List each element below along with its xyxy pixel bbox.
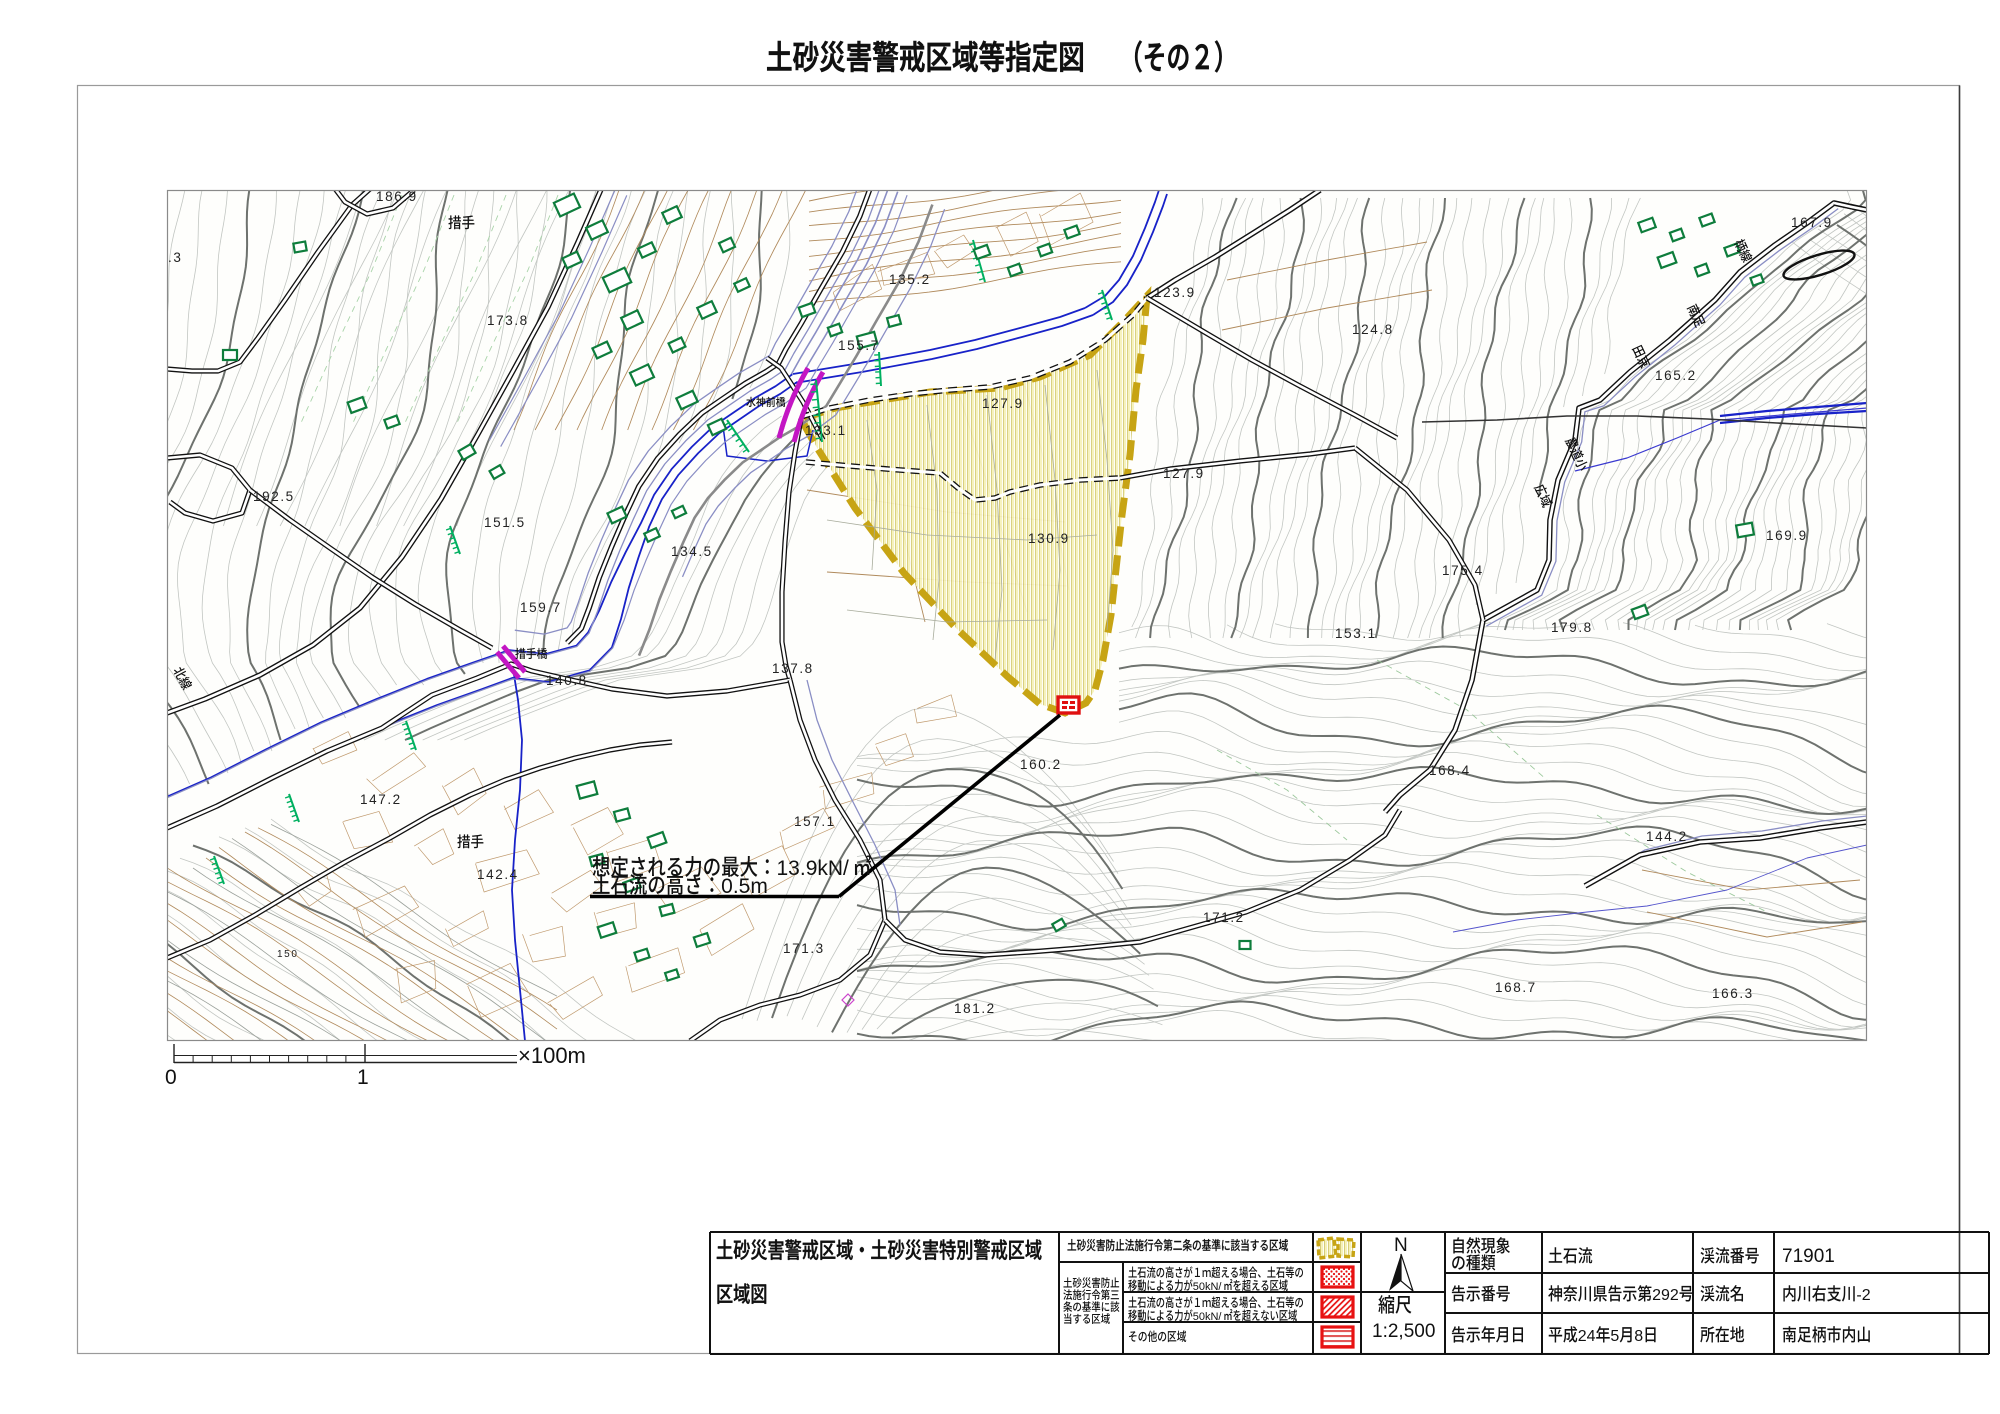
svg-text:153.1: 153.1 (1335, 626, 1377, 641)
svg-text:130.9: 130.9 (1028, 531, 1070, 546)
svg-text:160.2: 160.2 (1020, 757, 1062, 772)
svg-text:168.7: 168.7 (1495, 980, 1537, 995)
svg-text:171.2: 171.2 (1203, 910, 1245, 925)
svg-text:147.2: 147.2 (360, 792, 402, 807)
svg-text:50kN/: 50kN/ (1193, 1311, 1223, 1323)
svg-text:144.2: 144.2 (1646, 829, 1688, 844)
svg-text:0: 0 (165, 1066, 177, 1089)
svg-text:127.9: 127.9 (982, 396, 1024, 411)
svg-text:181.2: 181.2 (954, 1001, 996, 1016)
svg-text:137.8: 137.8 (772, 661, 814, 676)
svg-text:127.9: 127.9 (1163, 466, 1205, 481)
svg-text:1: 1 (357, 1066, 369, 1089)
svg-text:135.2: 135.2 (889, 272, 931, 287)
svg-text:1:2,500: 1:2,500 (1372, 1321, 1435, 1342)
svg-text:124.8: 124.8 (1352, 322, 1394, 337)
svg-text:140.8: 140.8 (546, 673, 588, 688)
svg-text:173.8: 173.8 (487, 313, 529, 328)
svg-text:133.1: 133.1 (805, 423, 847, 438)
svg-text:186.9: 186.9 (376, 189, 418, 204)
svg-text:71901: 71901 (1782, 1246, 1835, 1267)
svg-text:171.3: 171.3 (783, 941, 825, 956)
svg-text:169.9: 169.9 (1766, 528, 1808, 543)
svg-text:179.8: 179.8 (1551, 620, 1593, 635)
svg-text:165.2: 165.2 (1655, 368, 1697, 383)
svg-text:168.4: 168.4 (1429, 763, 1471, 778)
svg-text:50kN/: 50kN/ (1193, 1281, 1223, 1293)
svg-text:192.5: 192.5 (253, 489, 295, 504)
svg-text:×100m: ×100m (518, 1043, 586, 1068)
svg-text:167.9: 167.9 (1791, 215, 1833, 230)
svg-text:.3: .3 (168, 250, 182, 265)
svg-text:0.5m: 0.5m (721, 875, 768, 898)
svg-text:150: 150 (277, 949, 299, 960)
svg-text:159.7: 159.7 (520, 600, 562, 615)
svg-text:151.5: 151.5 (484, 515, 526, 530)
svg-text:13.9kN/: 13.9kN/ (777, 857, 850, 880)
svg-text:292: 292 (1652, 1287, 1679, 1304)
svg-text:5: 5 (1610, 1328, 1619, 1345)
svg-text:155.7: 155.7 (838, 338, 880, 353)
svg-text:123.9: 123.9 (1154, 285, 1196, 300)
svg-text:134.5: 134.5 (671, 544, 713, 559)
svg-text:142.4: 142.4 (477, 867, 519, 882)
svg-text:175.4: 175.4 (1442, 563, 1484, 578)
svg-text:157.1: 157.1 (794, 814, 836, 829)
svg-text:166.3: 166.3 (1712, 986, 1754, 1001)
svg-text:24: 24 (1578, 1328, 1596, 1345)
svg-text:8: 8 (1634, 1328, 1643, 1345)
svg-text:-2: -2 (1856, 1287, 1870, 1304)
svg-text:N: N (1394, 1235, 1408, 1256)
